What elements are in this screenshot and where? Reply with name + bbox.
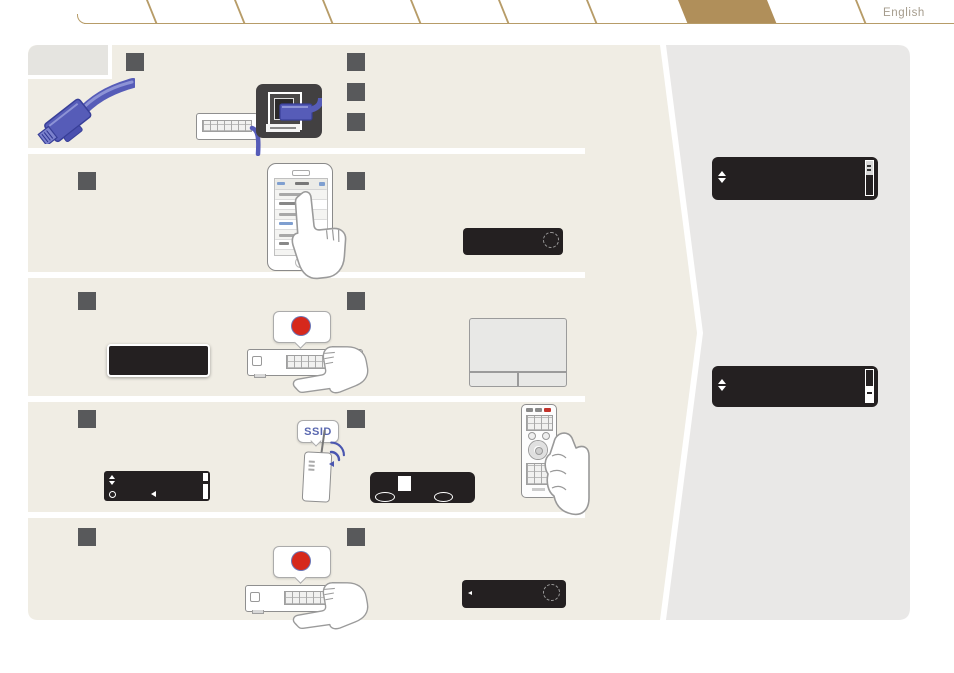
router-led <box>309 461 315 463</box>
scrollbar-track[interactable] <box>203 484 208 499</box>
screen-join-button[interactable] <box>319 182 325 186</box>
power-button <box>250 592 260 602</box>
scrollbar-track[interactable] <box>865 369 874 403</box>
cursor-left-icon <box>151 491 156 497</box>
ethernet-cable-illustration <box>30 78 135 144</box>
step-marker <box>347 172 365 190</box>
step-marker <box>347 83 365 101</box>
step-marker <box>347 292 365 310</box>
remote-round-key[interactable] <box>528 432 536 440</box>
front-display-ssid-list <box>104 471 210 501</box>
step-marker <box>347 528 365 546</box>
remote-power-key[interactable] <box>544 408 551 412</box>
scrollbar-thumb[interactable] <box>866 161 873 175</box>
row-separator <box>28 148 585 154</box>
select-circle-icon <box>109 491 116 498</box>
lan-port-callout <box>256 84 322 138</box>
record-button-icon <box>292 317 310 335</box>
step-marker <box>78 410 96 428</box>
corner-label-gap-v <box>108 45 112 79</box>
side-panel-bg <box>666 45 910 620</box>
router-led <box>309 465 315 467</box>
front-display-text-entry <box>370 472 475 503</box>
step-marker <box>78 172 96 190</box>
record-button-icon <box>292 552 310 570</box>
device-foot <box>254 374 266 378</box>
ssid-label: SSID <box>304 426 332 438</box>
panel-display-top <box>712 157 878 200</box>
softkey-oval[interactable] <box>434 492 453 502</box>
scrollbar-thumb[interactable] <box>866 370 873 386</box>
tapping-hand <box>284 185 353 285</box>
router-table <box>469 318 567 387</box>
blinking-status-circle-icon <box>543 584 560 601</box>
softkey-oval[interactable] <box>375 492 395 502</box>
language-label: English <box>883 7 925 19</box>
tab-bar-baseline <box>84 23 954 25</box>
step-marker <box>347 410 365 428</box>
port-label-text-mark <box>270 127 296 129</box>
active-section-tab[interactable] <box>678 0 776 23</box>
wifi-signal-icon <box>327 440 351 468</box>
updown-arrows-icon <box>718 379 726 391</box>
router-table-footer-vline <box>517 371 519 386</box>
card-corner-label <box>28 45 108 75</box>
phone-speaker <box>292 170 310 176</box>
front-display-blank <box>107 344 210 377</box>
step-marker <box>78 292 96 310</box>
step-marker <box>347 53 365 71</box>
front-display-connected <box>462 580 566 608</box>
updown-arrows-icon <box>718 171 726 183</box>
power-button <box>252 356 262 366</box>
panel-display-bottom <box>712 366 878 407</box>
screen-title <box>295 182 309 185</box>
router-led <box>308 469 314 471</box>
text-cursor-block <box>398 476 411 491</box>
scrollbar-track[interactable] <box>865 160 874 196</box>
scrollbar-mark <box>867 392 872 394</box>
step-marker <box>78 528 96 546</box>
blinking-status-circle-icon <box>543 232 559 248</box>
row-separator <box>28 512 585 518</box>
screen-back-link[interactable] <box>277 182 285 185</box>
front-display-connecting <box>463 228 563 255</box>
holding-hand <box>542 420 590 516</box>
remote-key[interactable] <box>526 408 533 412</box>
device-foot <box>252 610 264 614</box>
remote-key[interactable] <box>535 408 542 412</box>
cursor-left-icon <box>468 591 472 595</box>
rear-connector-strip <box>202 120 252 132</box>
scrollbar-thumb[interactable] <box>203 473 208 481</box>
updown-arrows-icon <box>109 475 115 485</box>
port-label-strip <box>266 124 300 132</box>
screen-row-label3 <box>279 242 289 245</box>
step-marker <box>126 53 144 71</box>
step-marker <box>347 113 365 131</box>
